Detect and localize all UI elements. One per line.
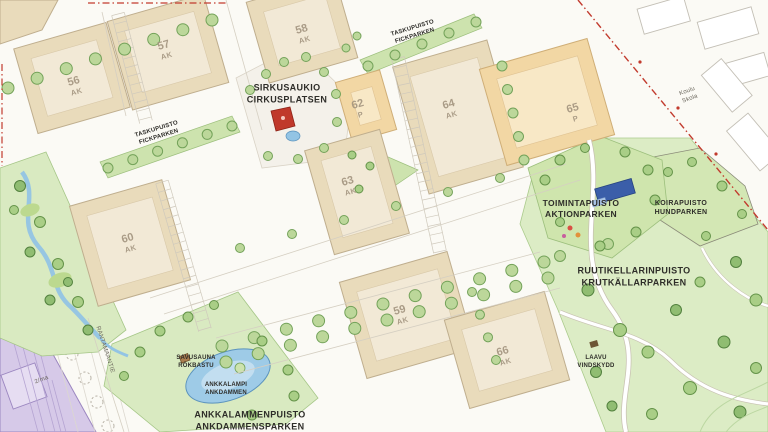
play-equipment [568, 226, 573, 231]
map-canvas [0, 0, 768, 432]
plan-illustration-map: SIRKUSAUKIOCIRKUSPLATSEN TASKUPUISTOFICK… [0, 0, 768, 432]
plaza-pool [286, 131, 300, 141]
